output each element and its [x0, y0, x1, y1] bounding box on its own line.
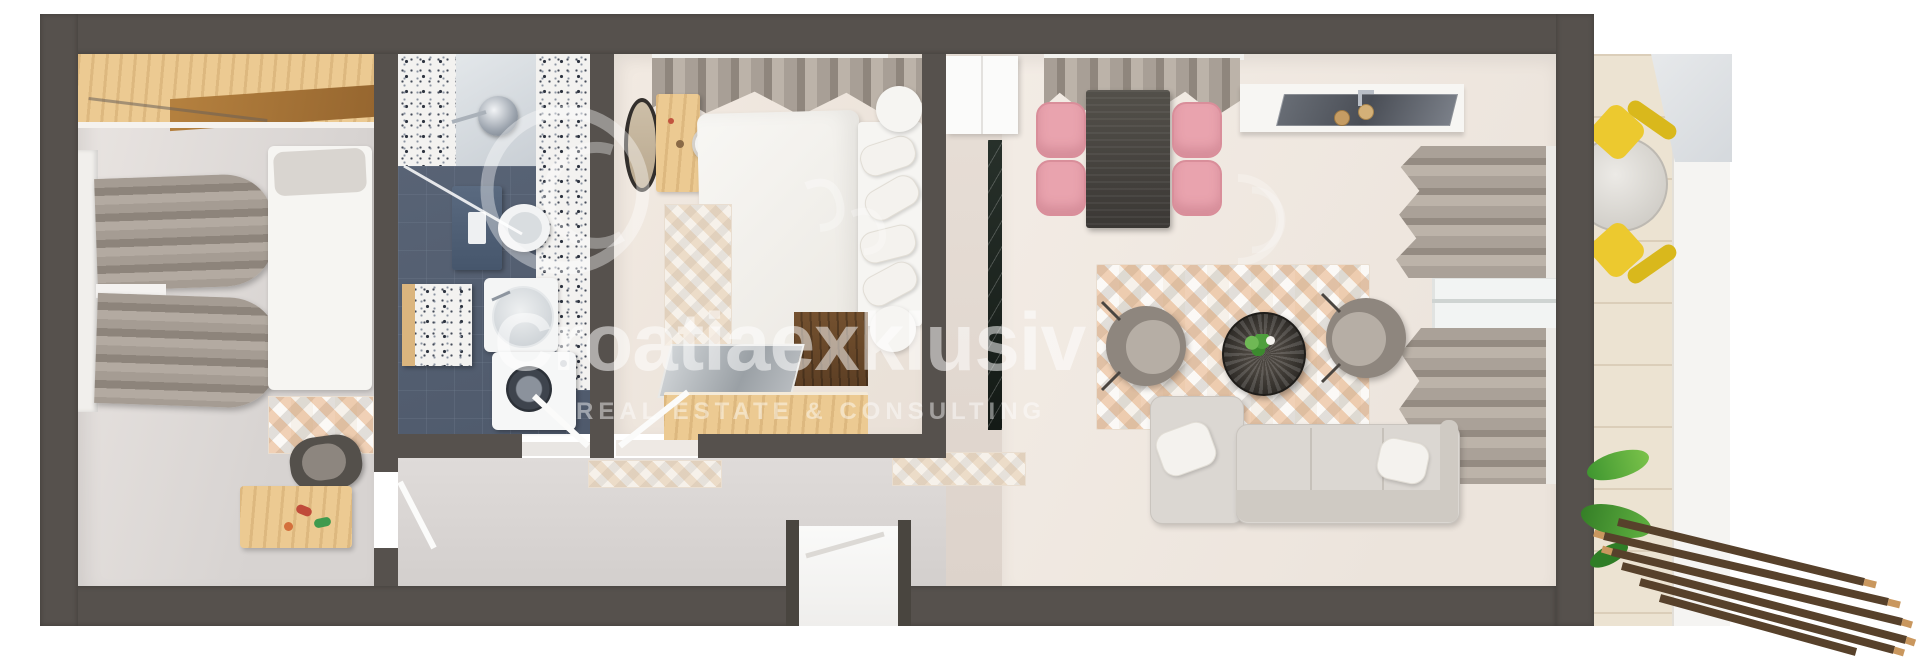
- dining-chair-2: [1036, 160, 1086, 216]
- curtain-rail-right-bottom: [1546, 328, 1556, 484]
- armchair-left-seat: [1126, 320, 1180, 374]
- dining-chair-1: [1036, 102, 1086, 158]
- sink-basin: [492, 286, 554, 348]
- kitchen-bowl-1: [1334, 110, 1350, 126]
- front-door-jamb-right: [898, 520, 911, 626]
- sofa-seam-1: [1310, 428, 1312, 490]
- dressing-item-brown: [676, 140, 684, 148]
- wardrobe-edge: [78, 122, 374, 128]
- wall-bathroom-bottom: [374, 434, 522, 458]
- dining-chair-4: [1172, 160, 1222, 216]
- chest-mirror-top: [657, 344, 804, 398]
- wall-left: [40, 14, 78, 626]
- bathroom-threshold: [522, 442, 590, 456]
- bedroom-middle-rug: [664, 204, 732, 346]
- washing-machine-dial: [560, 360, 567, 367]
- white-bed-pillow: [273, 148, 367, 197]
- corridor-runner-1: [588, 460, 722, 488]
- gray-daybed-bottom: [94, 293, 278, 409]
- right-window: [1432, 276, 1562, 334]
- bedroom-threshold: [616, 440, 698, 456]
- toilet-bowl-inner: [508, 212, 542, 244]
- oval-mirror: [624, 98, 660, 192]
- curtain-rail-right-top: [1546, 146, 1556, 278]
- front-door-jamb-left: [786, 520, 799, 626]
- sofa-armrest: [1440, 420, 1458, 522]
- right-window-mullion: [1432, 299, 1556, 303]
- marble-partition: [988, 140, 1002, 430]
- wall-bedroom-left-bathroom: [374, 54, 398, 472]
- dressing-item-red: [668, 118, 674, 124]
- shower-wall-left: [398, 54, 456, 166]
- front-door-opening: [799, 526, 898, 626]
- washing-machine-door: [506, 366, 552, 412]
- shower-head: [478, 96, 518, 136]
- wall-bedroom-hallway: [922, 54, 946, 458]
- kitchen-bowl-2: [1358, 104, 1374, 120]
- living-curtains-right-top: [1396, 146, 1552, 278]
- dining-chair-3: [1172, 102, 1222, 158]
- wall-bathroom-bedroom: [590, 54, 614, 458]
- floor-plan-stage: Croatiaexklusiv REAL ESTATE & CONSULTING: [0, 0, 1920, 666]
- coffee-table-flower: [1266, 336, 1275, 345]
- wall-bedroom-bottom: [698, 434, 946, 458]
- vanity-wood-side: [402, 284, 415, 366]
- hall-closet-seam: [981, 56, 983, 134]
- armchair-right-seat: [1332, 312, 1386, 366]
- wall-bedroom-left-stub: [374, 548, 398, 586]
- toilet-flush-plate: [468, 212, 486, 244]
- toy-orange: [284, 522, 293, 531]
- toy-chest: [240, 486, 352, 548]
- gray-daybed-top: [94, 173, 274, 291]
- nightstand-bottom: [870, 306, 916, 352]
- wall-top: [40, 14, 1594, 54]
- sofa-backrest: [1236, 490, 1458, 522]
- wall-right: [1556, 14, 1594, 626]
- nightstand-top: [876, 86, 922, 132]
- dining-table: [1086, 90, 1170, 228]
- chest-walnut-top: [794, 312, 868, 386]
